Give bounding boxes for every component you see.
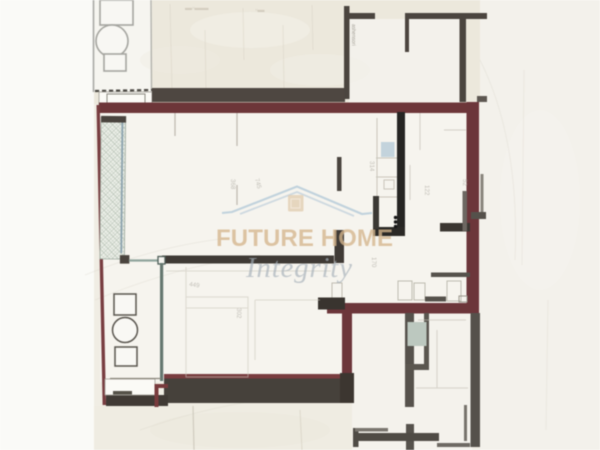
svg-text:368: 368 [229,179,236,190]
svg-text:122: 122 [423,185,430,196]
svg-text:Integrity: Integrity [245,252,352,284]
svg-text:302: 302 [235,308,242,319]
svg-text:449: 449 [189,281,201,289]
svg-text:170: 170 [370,257,377,268]
svg-text:52: 52 [461,179,468,186]
svg-text:▫▬: ▫▬ [255,7,264,14]
svg-text:FUTURE HOME: FUTURE HOME [216,225,393,252]
svg-text:314: 314 [368,161,375,172]
svg-text:▬▫▬▬: ▬▫▬▬ [185,5,208,12]
svg-text:ashensori: ashensori [350,24,356,46]
